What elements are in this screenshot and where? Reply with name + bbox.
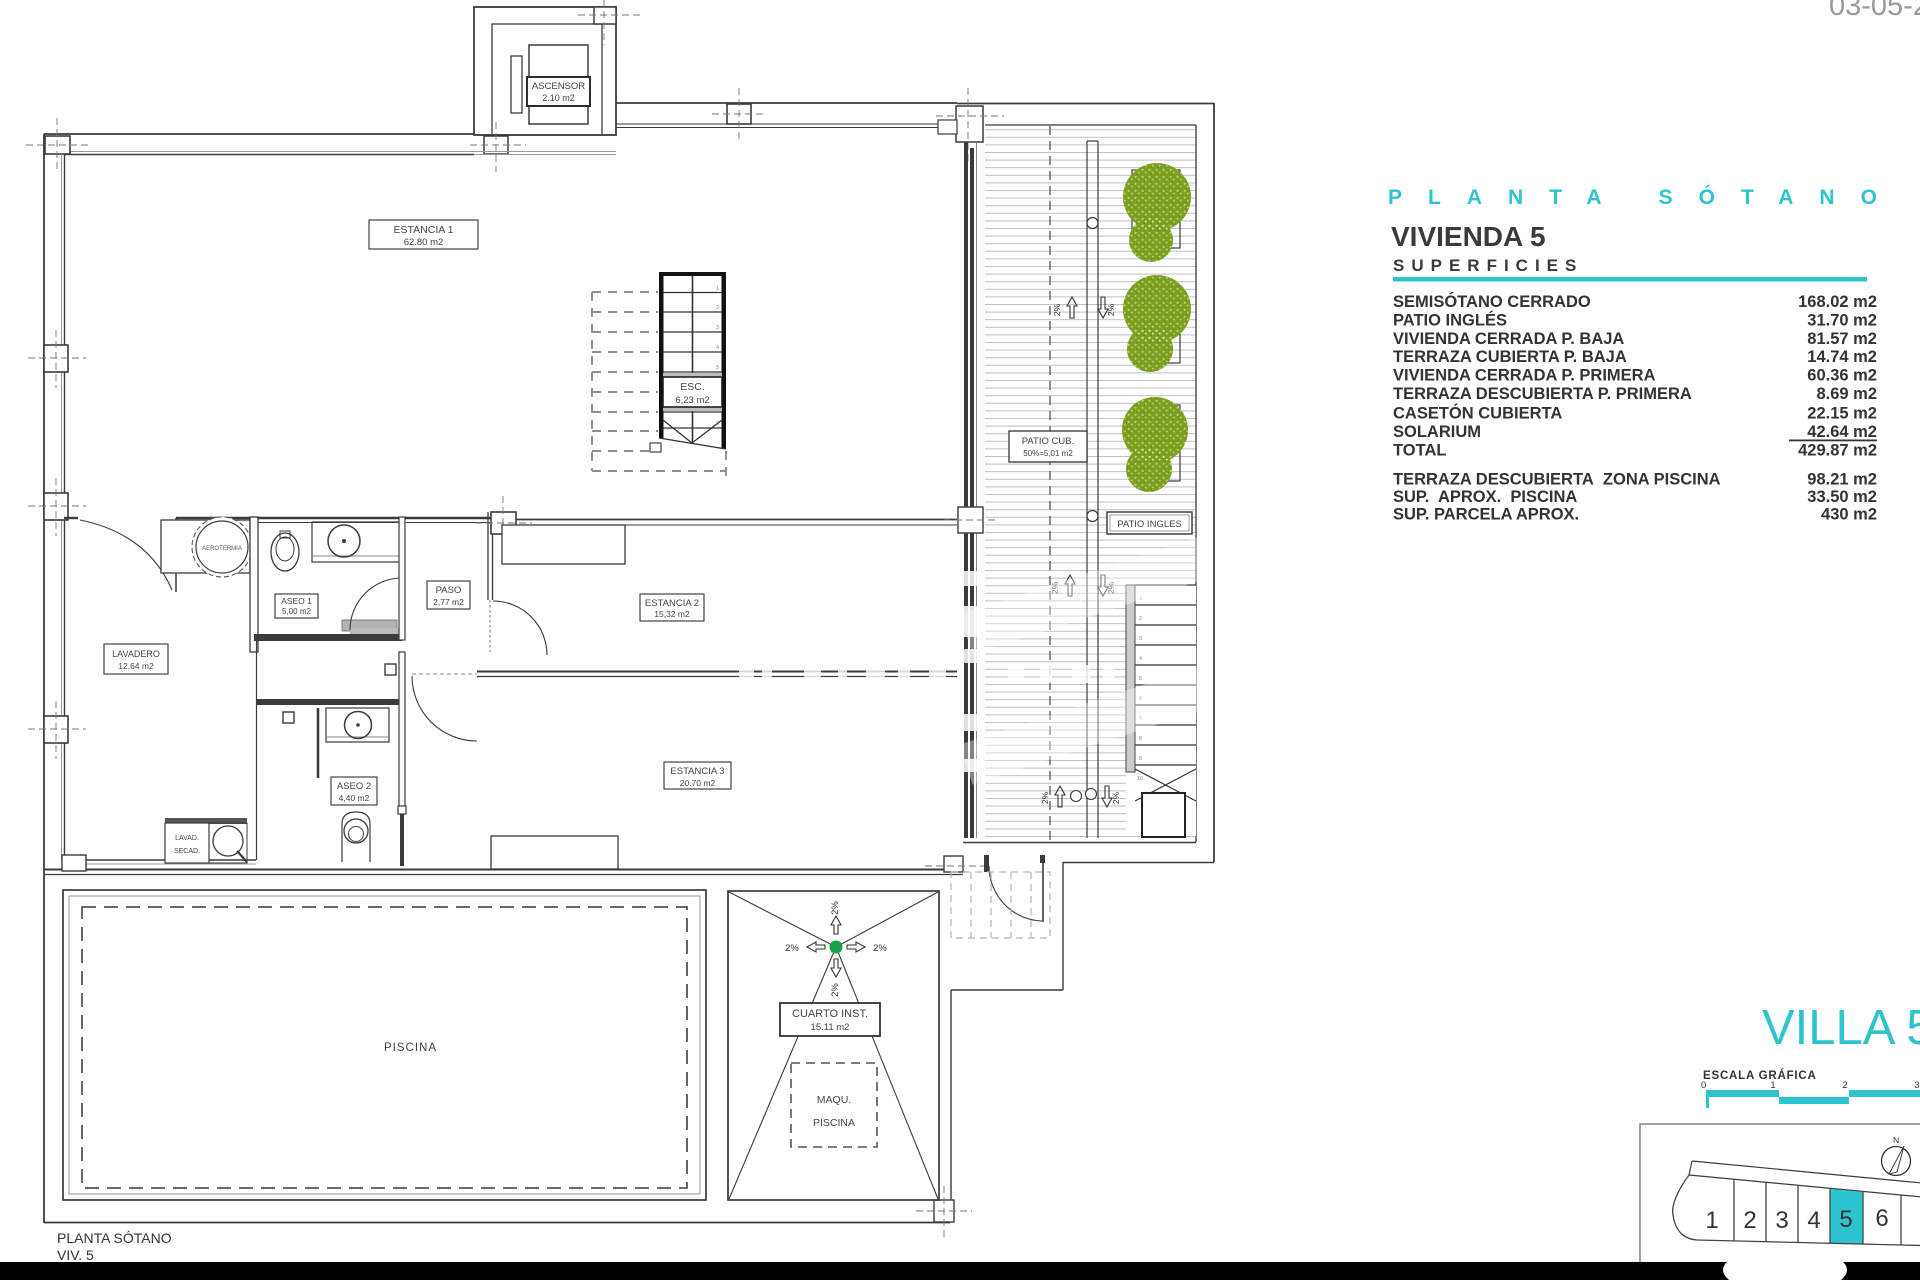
svg-text:5: 5	[1139, 676, 1142, 682]
svg-text:MAQU.: MAQU.	[817, 1094, 851, 1106]
svg-text:SEMISÓTANO CERRADO: SEMISÓTANO CERRADO	[1393, 292, 1591, 311]
svg-text:5: 5	[1839, 1206, 1852, 1233]
svg-text:168.02 m2: 168.02 m2	[1798, 293, 1877, 311]
svg-text:81.57 m2: 81.57 m2	[1807, 330, 1877, 348]
svg-text:2: 2	[1743, 1207, 1756, 1234]
svg-text:429.87 m2: 429.87 m2	[1798, 442, 1877, 460]
svg-text:VIVIENDA 5: VIVIENDA 5	[1391, 221, 1546, 252]
svg-text:ESTANCIA 3: ESTANCIA 3	[670, 766, 724, 777]
svg-text:2%: 2%	[785, 943, 799, 954]
svg-text:VIVIENDA CERRADA P. BAJA: VIVIENDA CERRADA P. BAJA	[1393, 330, 1624, 348]
svg-text:ESTANCIA 2: ESTANCIA 2	[645, 598, 699, 609]
svg-text:2%: 2%	[1052, 303, 1062, 316]
svg-text:1: 1	[716, 286, 719, 292]
svg-text:62.80 m2: 62.80 m2	[404, 237, 444, 248]
svg-text:33.50 m2: 33.50 m2	[1807, 488, 1877, 506]
svg-text:4: 4	[716, 345, 719, 351]
svg-text:2%: 2%	[873, 943, 887, 954]
svg-text:98.21 m2: 98.21 m2	[1807, 471, 1877, 489]
svg-text:PATIO INGLÉS: PATIO INGLÉS	[1393, 311, 1507, 330]
svg-text:2%: 2%	[1040, 791, 1050, 804]
svg-text:9: 9	[1139, 756, 1142, 762]
svg-text:3: 3	[1775, 1207, 1788, 1234]
svg-text:SUPERFICIES: SUPERFICIES	[1393, 256, 1583, 275]
svg-text:2%: 2%	[1111, 791, 1121, 804]
svg-text:VIV. 5: VIV. 5	[57, 1247, 94, 1263]
svg-text:PISCINA: PISCINA	[813, 1117, 855, 1129]
svg-text:03-05-2: 03-05-2	[1829, 0, 1920, 22]
svg-text:6: 6	[1875, 1205, 1888, 1232]
svg-text:PATIO CUB.: PATIO CUB.	[1022, 436, 1074, 447]
svg-text:ESCALA GRÁFICA: ESCALA GRÁFICA	[1703, 1069, 1817, 1082]
svg-text:3: 3	[1914, 1080, 1919, 1091]
svg-text:SECAD.: SECAD.	[174, 848, 200, 855]
svg-text:15.11 m2: 15.11 m2	[811, 1022, 850, 1033]
svg-text:ASEO 1: ASEO 1	[281, 596, 312, 606]
svg-text:4: 4	[1139, 656, 1142, 662]
svg-text:4: 4	[1807, 1207, 1820, 1234]
svg-text:PLANTA SÓTANO: PLANTA SÓTANO	[57, 1230, 172, 1246]
svg-text:LAVAD.: LAVAD.	[175, 835, 199, 842]
svg-text:2%: 2%	[830, 983, 841, 997]
svg-text:22.15 m2: 22.15 m2	[1807, 405, 1877, 423]
svg-text:8.69 m2: 8.69 m2	[1816, 385, 1877, 403]
svg-text:2,77 m2: 2,77 m2	[433, 597, 464, 607]
svg-text:N: N	[1893, 1135, 1899, 1145]
svg-text:SOLARIUM: SOLARIUM	[1393, 423, 1481, 441]
svg-text:SUP. PARCELA APROX.: SUP. PARCELA APROX.	[1393, 506, 1579, 524]
svg-text:VILLA 5: VILLA 5	[1762, 1001, 1920, 1055]
svg-text:PATIO INGLES: PATIO INGLES	[1117, 519, 1182, 530]
svg-text:PASO: PASO	[436, 585, 462, 596]
svg-text:ASCENSOR: ASCENSOR	[532, 81, 585, 92]
svg-text:SUP. APROX. PISCINA: SUP. APROX. PISCINA	[1393, 488, 1577, 506]
svg-text:5: 5	[716, 365, 719, 371]
svg-text:ASEO 2: ASEO 2	[337, 781, 371, 792]
svg-text:5,00 m2: 5,00 m2	[282, 607, 311, 616]
svg-text:AEROTERMIA: AEROTERMIA	[202, 546, 242, 552]
svg-text:2: 2	[1139, 616, 1142, 622]
svg-text:2.10 m2: 2.10 m2	[542, 93, 575, 103]
svg-text:PLANTA SÓTANO: PLANTA SÓTANO	[1388, 185, 1903, 209]
svg-text:1: 1	[1770, 1080, 1775, 1091]
svg-text:CASETÓN CUBIERTA: CASETÓN CUBIERTA	[1393, 404, 1562, 423]
svg-text:14.74 m2: 14.74 m2	[1807, 348, 1877, 366]
svg-text:430 m2: 430 m2	[1821, 506, 1877, 524]
svg-text:2: 2	[716, 305, 719, 311]
svg-text:TERRAZA DESCUBIERTA ZONA PISC: TERRAZA DESCUBIERTA ZONA PISCINA	[1393, 471, 1721, 489]
svg-text:4,40 m2: 4,40 m2	[339, 793, 370, 803]
svg-text:60.36 m2: 60.36 m2	[1807, 367, 1877, 385]
svg-text:0: 0	[1701, 1080, 1706, 1091]
svg-text:2%: 2%	[830, 901, 841, 915]
svg-text:1: 1	[1705, 1207, 1718, 1234]
svg-text:TERRAZA CUBIERTA P. BAJA: TERRAZA CUBIERTA P. BAJA	[1393, 348, 1627, 366]
svg-text:TERRAZA DESCUBIERTA P. PRIMERA: TERRAZA DESCUBIERTA P. PRIMERA	[1393, 385, 1692, 403]
svg-text:PISCINA: PISCINA	[384, 1042, 437, 1054]
svg-text:8: 8	[716, 421, 719, 427]
svg-text:2%: 2%	[1106, 303, 1116, 316]
svg-text:8: 8	[1139, 736, 1142, 742]
svg-text:50%=5,01 m2: 50%=5,01 m2	[1023, 449, 1073, 458]
svg-text:2: 2	[1842, 1080, 1847, 1091]
svg-text:12.64 m2: 12.64 m2	[118, 661, 154, 671]
svg-text:42.64 m2: 42.64 m2	[1807, 423, 1877, 441]
svg-text:20.70 m2: 20.70 m2	[680, 778, 716, 788]
svg-text:ESTANCIA 1: ESTANCIA 1	[394, 224, 454, 236]
svg-text:VIVIENDA CERRADA P. PRIMERA: VIVIENDA CERRADA P. PRIMERA	[1393, 367, 1656, 385]
svg-text:CUARTO INST.: CUARTO INST.	[792, 1008, 868, 1020]
svg-text:6,23 m2: 6,23 m2	[675, 395, 709, 406]
svg-text:10: 10	[1137, 776, 1143, 782]
svg-text:15,32 m2: 15,32 m2	[654, 609, 690, 619]
svg-text:LAVADERO: LAVADERO	[112, 649, 160, 659]
svg-text:ESC.: ESC.	[680, 381, 705, 393]
svg-text:31.70 m2: 31.70 m2	[1807, 312, 1877, 330]
svg-text:3: 3	[716, 325, 719, 331]
svg-text:3: 3	[1139, 636, 1142, 642]
svg-text:TOTAL: TOTAL	[1393, 442, 1446, 460]
